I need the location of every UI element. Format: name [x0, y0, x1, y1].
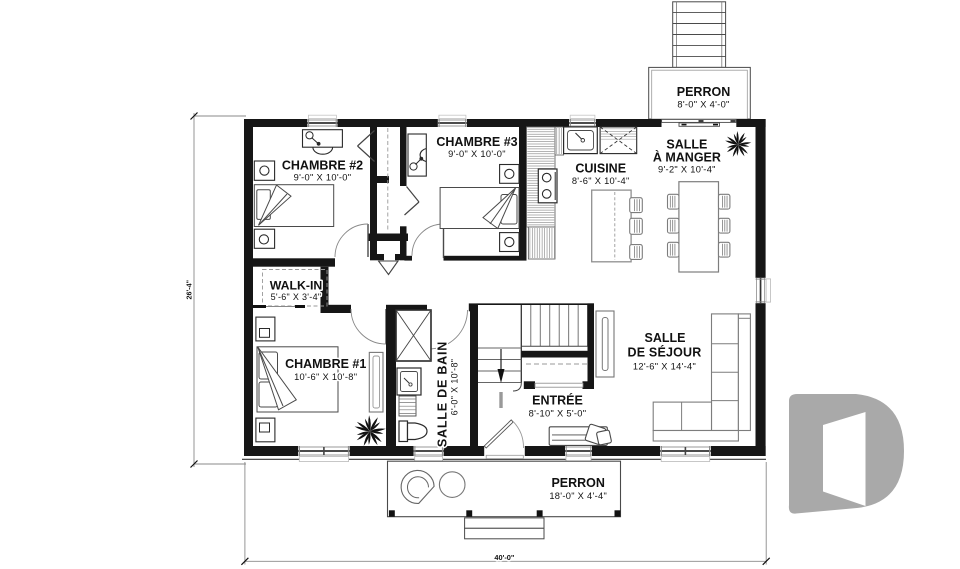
svg-text:8'-0" X 4'-0": 8'-0" X 4'-0" [677, 100, 729, 110]
svg-text:18'-0" X 4'-4": 18'-0" X 4'-4" [549, 491, 607, 501]
svg-text:CUISINE: CUISINE [575, 162, 626, 176]
svg-text:26'-4": 26'-4" [185, 280, 194, 300]
svg-text:10'-6" X 10'-8": 10'-6" X 10'-8" [294, 372, 357, 382]
svg-text:5'-6" X 3'-4": 5'-6" X 3'-4" [271, 292, 322, 302]
svg-text:PERRON: PERRON [551, 476, 604, 490]
svg-text:CHAMBRE #3: CHAMBRE #3 [436, 135, 517, 149]
svg-text:8'-10" X 5'-0": 8'-10" X 5'-0" [529, 409, 587, 419]
svg-text:DE SÉJOUR: DE SÉJOUR [627, 345, 701, 360]
svg-text:9'-0" X 10'-0": 9'-0" X 10'-0" [448, 149, 506, 159]
svg-text:9'-2" X 10'-4": 9'-2" X 10'-4" [658, 165, 716, 175]
svg-text:À MANGER: À MANGER [653, 150, 721, 165]
svg-text:SALLE: SALLE [645, 331, 686, 345]
svg-text:PERRON: PERRON [677, 85, 730, 99]
svg-text:CHAMBRE #2: CHAMBRE #2 [282, 159, 363, 173]
svg-text:ENTRÉE: ENTRÉE [532, 393, 583, 408]
svg-text:CHAMBRE #1: CHAMBRE #1 [285, 357, 366, 371]
svg-text:6'-0" X 10'-8": 6'-0" X 10'-8" [450, 359, 460, 416]
svg-text:8'-6" X 10'-4": 8'-6" X 10'-4" [572, 176, 630, 186]
svg-text:9'-0" X 10'-0": 9'-0" X 10'-0" [294, 173, 352, 183]
svg-text:SALLE DE BAIN: SALLE DE BAIN [436, 341, 450, 447]
svg-text:12'-6" X 14'-4": 12'-6" X 14'-4" [633, 362, 696, 372]
svg-text:SALLE: SALLE [666, 138, 707, 152]
svg-text:WALK-IN: WALK-IN [270, 279, 323, 293]
svg-text:40'-0": 40'-0" [494, 553, 515, 562]
